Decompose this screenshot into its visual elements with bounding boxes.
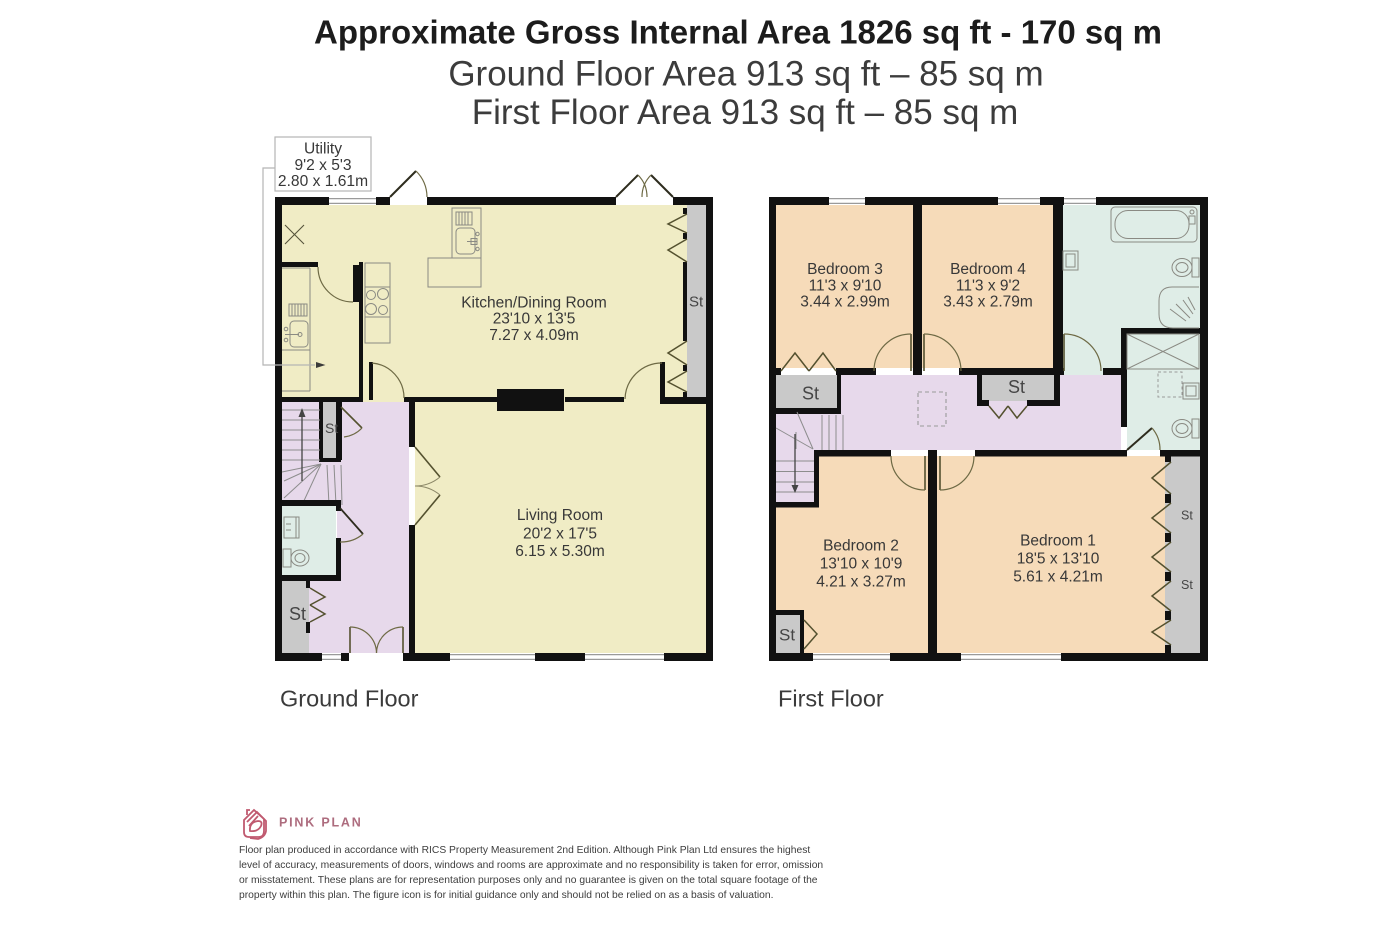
svg-text:First Floor Area 913 sq ft – 8: First Floor Area 913 sq ft – 85 sq m (472, 93, 1019, 132)
svg-text:property within this plan. The: property within this plan. The figure ic… (239, 890, 773, 901)
svg-text:9'2 x 5'3: 9'2 x 5'3 (294, 157, 351, 174)
svg-text:level of accuracy, measurement: level of accuracy, measurements of doors… (239, 860, 823, 871)
svg-text:11'3 x 9'2: 11'3 x 9'2 (956, 277, 1020, 294)
svg-text:St: St (1181, 578, 1193, 592)
svg-text:Approximate Gross Internal Are: Approximate Gross Internal Area 1826 sq … (314, 14, 1162, 51)
svg-text:Bedroom 3: Bedroom 3 (807, 261, 883, 278)
svg-text:23'10 x 13'5: 23'10 x 13'5 (493, 311, 576, 328)
svg-text:St: St (1181, 509, 1193, 523)
svg-text:3.44 x 2.99m: 3.44 x 2.99m (800, 294, 890, 311)
svg-text:PINK PLAN: PINK PLAN (279, 816, 363, 830)
svg-text:13'10 x 10'9: 13'10 x 10'9 (820, 556, 903, 573)
svg-text:2.80 x 1.61m: 2.80 x 1.61m (278, 173, 368, 190)
svg-text:Ground Floor: Ground Floor (280, 685, 419, 711)
svg-text:Ground Floor Area 913 sq ft –: Ground Floor Area 913 sq ft – 85 sq m (448, 55, 1043, 94)
svg-text:St: St (289, 604, 306, 624)
svg-text:St: St (1008, 377, 1025, 397)
svg-text:Kitchen/Dining Room: Kitchen/Dining Room (461, 295, 607, 312)
svg-text:Utility: Utility (304, 141, 342, 158)
svg-text:First Floor: First Floor (778, 685, 884, 711)
svg-text:18'5 x 13'10: 18'5 x 13'10 (1017, 551, 1100, 568)
svg-text:Floor plan produced in accorda: Floor plan produced in accordance with R… (239, 845, 810, 856)
svg-text:Bedroom 1: Bedroom 1 (1020, 533, 1096, 550)
svg-text:3.43 x 2.79m: 3.43 x 2.79m (943, 294, 1033, 311)
svg-text:11'3 x 9'10: 11'3 x 9'10 (809, 277, 882, 294)
svg-text:St: St (325, 420, 338, 436)
svg-text:or misstatement. These plans a: or misstatement. These plans are for rep… (239, 875, 818, 886)
svg-text:Living Room: Living Room (517, 507, 603, 524)
svg-text:4.21 x 3.27m: 4.21 x 3.27m (816, 574, 906, 591)
svg-text:St: St (802, 384, 819, 404)
svg-text:5.61 x 4.21m: 5.61 x 4.21m (1013, 569, 1103, 586)
svg-text:Bedroom 4: Bedroom 4 (950, 261, 1026, 278)
svg-text:St: St (779, 626, 795, 645)
svg-text:7.27 x 4.09m: 7.27 x 4.09m (489, 327, 579, 344)
svg-text:Bedroom 2: Bedroom 2 (823, 538, 899, 555)
svg-text:20'2 x 17'5: 20'2 x 17'5 (523, 525, 597, 542)
svg-text:6.15 x 5.30m: 6.15 x 5.30m (515, 543, 605, 560)
svg-text:St: St (689, 294, 704, 311)
